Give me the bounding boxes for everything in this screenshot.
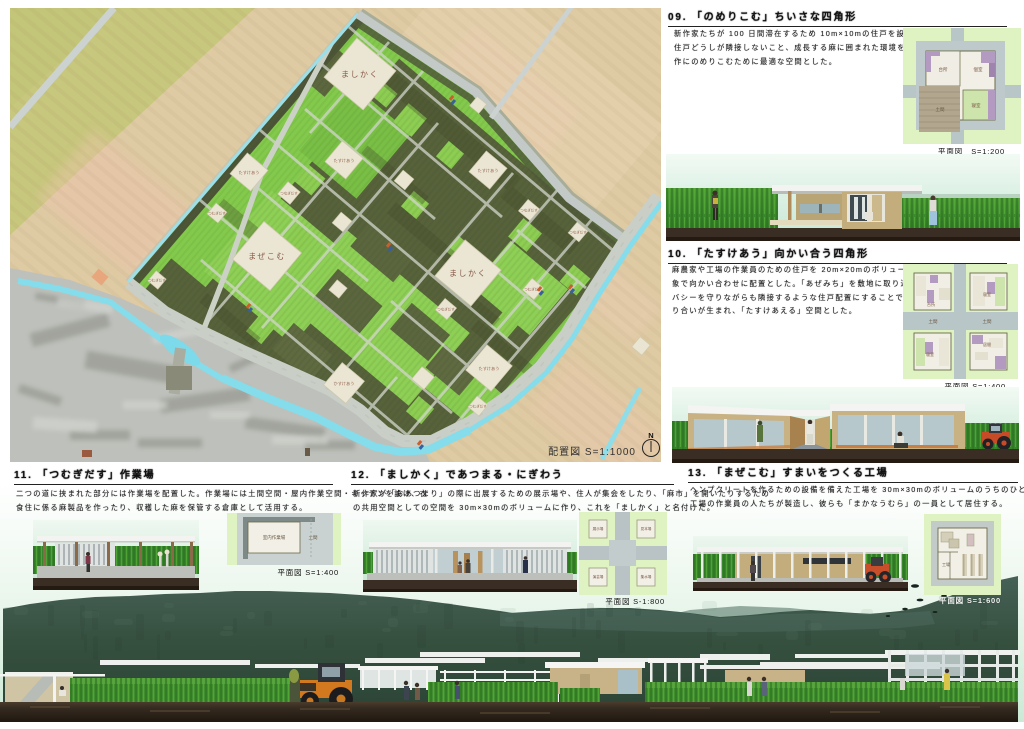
svg-text:かすけあう: かすけあう bbox=[334, 380, 355, 387]
svg-text:土間: 土間 bbox=[309, 534, 318, 541]
svg-text:ましかく: ましかく bbox=[341, 70, 379, 79]
svg-text:つなぎだす: つなぎだす bbox=[520, 208, 538, 213]
svg-text:演芸場: 演芸場 bbox=[593, 574, 604, 579]
svg-text:室内作業場: 室内作業場 bbox=[263, 534, 286, 541]
svg-text:見本場: 見本場 bbox=[641, 526, 652, 531]
svg-text:展示場: 展示場 bbox=[593, 526, 604, 531]
svg-text:土間: 土間 bbox=[983, 318, 992, 325]
svg-text:寝室: 寝室 bbox=[972, 102, 981, 108]
svg-text:寝室: 寝室 bbox=[926, 351, 934, 357]
svg-text:工場: 工場 bbox=[942, 561, 950, 567]
svg-text:寝室: 寝室 bbox=[983, 291, 991, 297]
svg-text:個室: 個室 bbox=[974, 66, 983, 73]
svg-text:つなぎだす: つなぎだす bbox=[569, 230, 587, 235]
svg-text:つむぎだす: つむぎだす bbox=[469, 404, 487, 409]
svg-text:台所: 台所 bbox=[939, 66, 948, 73]
svg-text:土間: 土間 bbox=[929, 318, 938, 325]
svg-text:まぜこむ: まぜこむ bbox=[248, 252, 286, 261]
svg-text:つなぎだす: つなぎだす bbox=[437, 307, 455, 312]
svg-text:配置図 S=1:1000: 配置図 S=1:1000 bbox=[548, 446, 636, 458]
svg-text:つなぎだす: つなぎだす bbox=[280, 191, 298, 196]
svg-text:N: N bbox=[648, 431, 653, 440]
svg-text:ましかく: ましかく bbox=[449, 269, 487, 278]
svg-text:つむぎだす: つむぎだす bbox=[208, 211, 226, 216]
svg-text:台所: 台所 bbox=[927, 301, 935, 307]
svg-text:集水場: 集水場 bbox=[641, 574, 652, 579]
svg-text:居間: 居間 bbox=[983, 341, 991, 347]
svg-text:土間: 土間 bbox=[936, 106, 945, 113]
svg-text:つむぎだす: つむぎだす bbox=[148, 278, 166, 283]
